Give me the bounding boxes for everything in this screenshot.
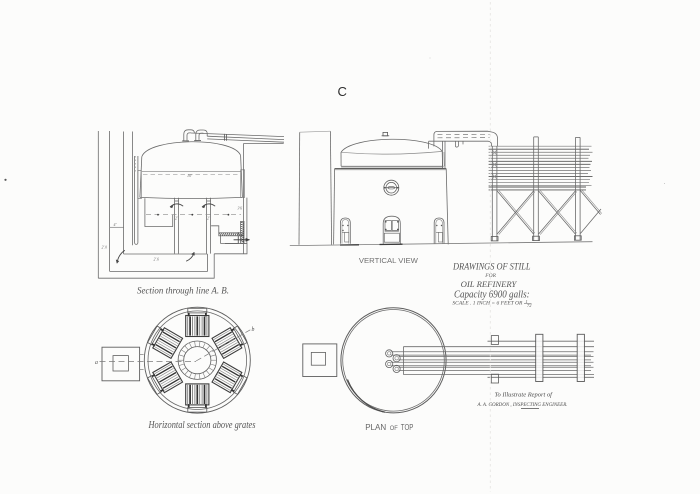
svg-text:Horizontal section above grate: Horizontal section above grates	[148, 420, 256, 431]
svg-text:OIL REFINERY: OIL REFINERY	[461, 279, 518, 289]
svg-text:C: C	[338, 84, 347, 99]
svg-text:PLAN: PLAN	[365, 423, 386, 432]
svg-text:3′6: 3′6	[238, 207, 243, 211]
svg-text:To Illustrate Report of: To Illustrate Report of	[495, 391, 554, 398]
svg-text:Section through line A. B.: Section through line A. B.	[137, 286, 229, 297]
svg-text:OF: OF	[390, 426, 398, 432]
svg-text:b: b	[252, 327, 255, 333]
svg-text:SCALE . 1 INCH = 6 FEET OR: SCALE . 1 INCH = 6 FEET OR	[452, 302, 522, 307]
svg-text:10′: 10′	[187, 173, 192, 178]
svg-text:VERTICAL VIEW: VERTICAL VIEW	[359, 256, 419, 265]
svg-text:TOP: TOP	[401, 423, 414, 432]
svg-text:Capacity 6900 galls:: Capacity 6900 galls:	[454, 290, 530, 301]
svg-text:2′: 2′	[207, 217, 210, 221]
svg-text:DRAWINGS OF STILL: DRAWINGS OF STILL	[452, 261, 530, 271]
svg-text:2′.0: 2′.0	[102, 246, 108, 250]
svg-text:2′.6: 2′.6	[154, 258, 160, 262]
svg-text:a: a	[95, 360, 98, 366]
svg-text:4′: 4′	[114, 222, 117, 227]
svg-text:2′: 2′	[175, 217, 178, 221]
